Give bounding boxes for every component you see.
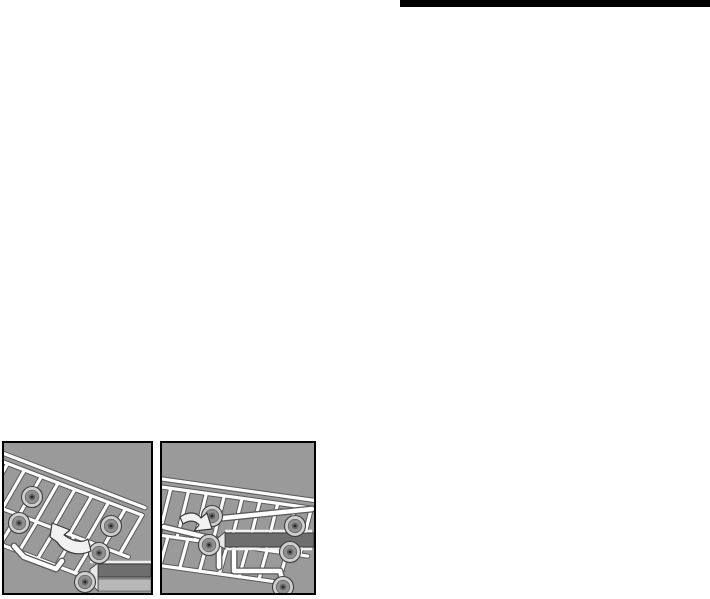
rail-dark-bar [98,564,151,577]
roller-wheel [22,487,43,508]
roller-wheel [75,572,96,593]
roller-wheel [273,577,294,594]
manual-page: { "page": { "background_color": "#ffffff… [0,0,710,599]
roller-wheel [89,543,110,564]
figure-panel-left [2,441,153,595]
figure-row [0,0,710,599]
figure-panel-right [160,441,316,595]
side-rail [90,562,151,591]
roller-wheel [280,542,301,563]
rack-tilt-illustration [4,443,151,593]
roller-wheel [9,513,30,534]
rail-light-bar [98,579,151,591]
roller-wheel [285,516,306,537]
roller-wheel [101,516,122,537]
roller-wheel [199,535,220,556]
rack-slide-illustration [162,443,314,593]
